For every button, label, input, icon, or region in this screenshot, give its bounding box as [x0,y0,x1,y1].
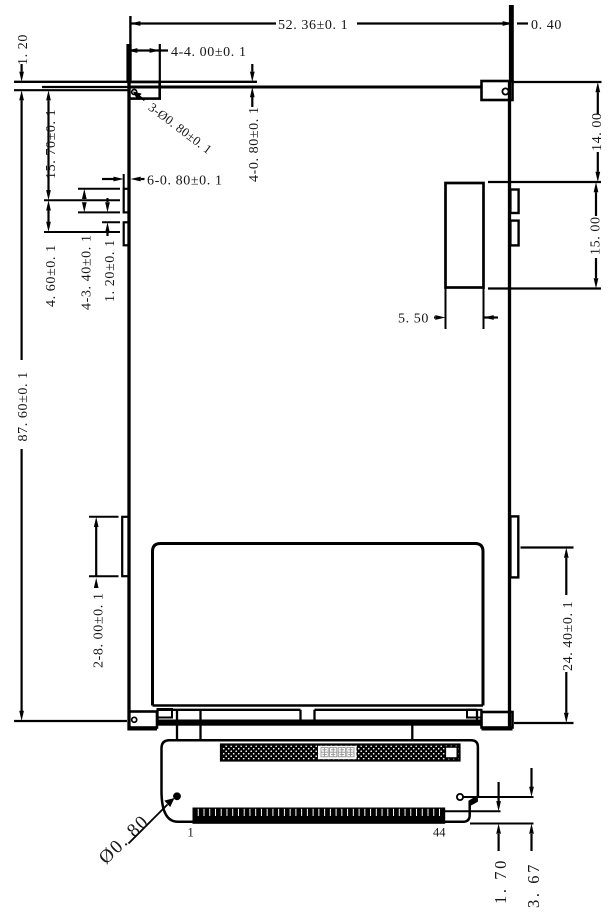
svg-text:24. 40±0. 1: 24. 40±0. 1 [561,601,576,671]
svg-text:44: 44 [433,826,446,840]
svg-text:15. 00: 15. 00 [589,216,604,255]
svg-text:1: 1 [188,826,194,840]
svg-text:14. 00: 14. 00 [590,112,605,151]
svg-text:1. 20: 1. 20 [16,34,31,65]
svg-text:0. 40: 0. 40 [531,18,562,33]
svg-text:1. 70: 1. 70 [491,858,510,904]
svg-text:87. 60±0. 1: 87. 60±0. 1 [16,371,31,441]
svg-text:2-8. 00±0. 1: 2-8. 00±0. 1 [92,592,107,668]
svg-text:15. 70±0. 1: 15. 70±0. 1 [44,109,59,179]
svg-text:4-3. 40±0. 1: 4-3. 40±0. 1 [80,234,95,310]
svg-text:6-0. 80±0. 1: 6-0. 80±0. 1 [147,174,223,189]
svg-text:4-0. 80±0. 1: 4-0. 80±0. 1 [247,106,262,182]
svg-text:3. 67: 3. 67 [524,862,543,908]
svg-text:4-4. 00±0. 1: 4-4. 00±0. 1 [171,45,247,60]
svg-text:1. 20±0. 1: 1. 20±0. 1 [103,239,118,302]
svg-text:5. 50: 5. 50 [398,312,429,327]
svg-text:52. 36±0. 1: 52. 36±0. 1 [278,18,348,33]
svg-text:4. 60±0. 1: 4. 60±0. 1 [44,244,59,307]
